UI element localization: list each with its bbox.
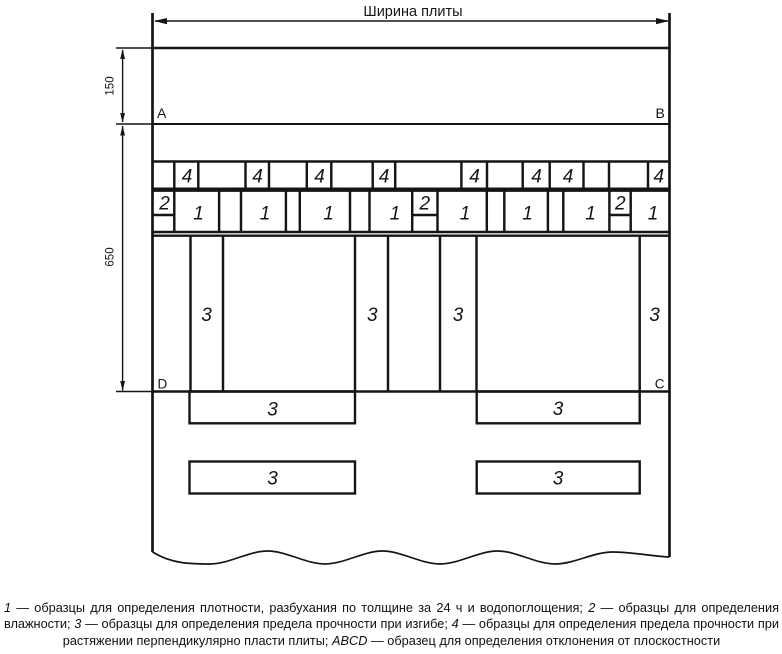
svg-text:2: 2 — [419, 194, 431, 215]
svg-text:650: 650 — [105, 247, 117, 266]
svg-text:4: 4 — [531, 167, 542, 188]
svg-text:1: 1 — [648, 204, 659, 225]
svg-text:4: 4 — [469, 167, 480, 188]
svg-text:3: 3 — [553, 469, 564, 490]
svg-text:1: 1 — [193, 204, 204, 225]
svg-text:1: 1 — [323, 204, 334, 225]
svg-text:3: 3 — [267, 469, 278, 490]
svg-text:1: 1 — [260, 204, 271, 225]
svg-text:4: 4 — [379, 167, 390, 188]
svg-text:150: 150 — [105, 76, 117, 95]
svg-text:4: 4 — [654, 167, 665, 188]
svg-text:3: 3 — [367, 305, 378, 326]
svg-text:1: 1 — [585, 204, 596, 225]
svg-text:3: 3 — [201, 305, 212, 326]
svg-text:4: 4 — [563, 167, 574, 188]
svg-text:D: D — [158, 377, 168, 392]
svg-text:2: 2 — [158, 194, 170, 215]
svg-text:3: 3 — [267, 400, 278, 421]
svg-text:C: C — [655, 377, 665, 392]
svg-text:Ширина плиты: Ширина плиты — [363, 4, 462, 20]
svg-text:1: 1 — [522, 204, 533, 225]
svg-text:1: 1 — [390, 204, 401, 225]
svg-text:A: A — [157, 105, 167, 121]
svg-text:1: 1 — [460, 204, 471, 225]
svg-text:3: 3 — [453, 305, 464, 326]
svg-text:4: 4 — [314, 167, 325, 188]
svg-text:3: 3 — [553, 399, 564, 420]
svg-text:4: 4 — [182, 167, 193, 188]
svg-text:B: B — [656, 105, 665, 121]
svg-text:2: 2 — [614, 194, 626, 215]
svg-text:3: 3 — [649, 305, 660, 326]
svg-text:4: 4 — [252, 167, 263, 188]
